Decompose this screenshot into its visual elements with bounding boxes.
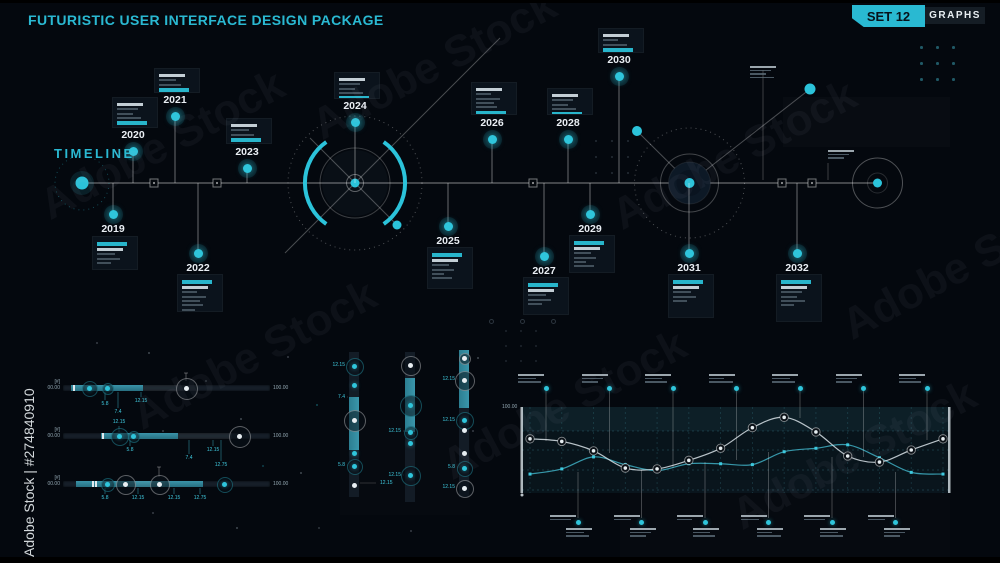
chart-callout-microtext — [566, 526, 592, 539]
year-label: 2031 — [659, 262, 719, 274]
card-text-line — [231, 129, 249, 131]
year-info-card — [776, 274, 822, 322]
card-text-line — [630, 528, 656, 530]
decor-dot-grid — [611, 140, 613, 142]
card-text-line — [476, 93, 491, 95]
year-info-card — [668, 274, 714, 318]
v-slider-tick-value: 7.4 — [315, 394, 345, 400]
slider-handle[interactable] — [237, 434, 242, 439]
card-text-line — [97, 253, 115, 255]
slider-handle[interactable] — [408, 403, 413, 408]
card-text-line — [476, 88, 502, 91]
year-label: 2023 — [217, 146, 277, 158]
v-slider-tick-value: 5.8 — [425, 464, 455, 470]
set-badge: SET 12 — [852, 5, 925, 27]
card-text-line — [693, 535, 715, 537]
slider-handle[interactable] — [462, 428, 467, 433]
hud-annotation-microtext — [750, 64, 776, 80]
card-text-line — [574, 247, 600, 250]
card-highlight-line — [432, 253, 462, 257]
card-highlight-line — [231, 138, 261, 142]
v-slider-tick-value: 12.15 — [371, 472, 401, 478]
decor-dot-grid — [920, 46, 923, 49]
slider-handle[interactable] — [462, 486, 467, 491]
card-text-line — [550, 515, 576, 517]
decor-dot-grid — [920, 78, 923, 81]
slider-handle[interactable] — [123, 482, 128, 487]
h-slider-tick-value: 12.15 — [168, 495, 181, 501]
decor-dot-grid — [505, 345, 507, 347]
card-highlight-line — [552, 112, 582, 115]
year-info-card — [92, 236, 138, 270]
chart-callout-dot[interactable] — [861, 386, 866, 391]
card-text-line — [614, 519, 631, 521]
year-info-card — [569, 235, 615, 273]
year-node-dot[interactable] — [685, 249, 694, 258]
card-text-line — [231, 134, 254, 136]
card-text-line — [868, 519, 885, 521]
chart-callout-microtext — [550, 513, 572, 522]
card-text-line — [566, 528, 592, 530]
card-text-line — [432, 269, 454, 271]
card-text-line — [574, 265, 594, 267]
chart-callout-dot[interactable] — [893, 520, 898, 525]
card-text-line — [836, 374, 862, 376]
h-slider-max-label: 100.00 — [273, 385, 288, 391]
slider-handle[interactable] — [408, 430, 413, 435]
card-text-line — [836, 378, 857, 380]
slider-handle[interactable] — [462, 378, 467, 383]
decor-dot-grid — [505, 360, 507, 362]
card-text-line — [339, 88, 355, 90]
card-text-line — [781, 291, 802, 293]
card-text-line — [741, 519, 759, 521]
h-slider-min-label: 00.00 — [44, 385, 60, 391]
card-text-line — [673, 296, 696, 298]
decor-dot-grid — [611, 156, 613, 158]
year-node-dot[interactable] — [488, 135, 497, 144]
card-text-line — [182, 291, 197, 293]
card-text-line — [476, 98, 500, 100]
card-text-line — [614, 515, 640, 517]
card-highlight-line — [476, 111, 506, 115]
card-highlight-line — [673, 280, 703, 284]
card-text-line — [528, 299, 551, 301]
card-text-line — [820, 528, 846, 530]
chart-callout-dot[interactable] — [830, 520, 835, 525]
card-text-line — [693, 528, 719, 530]
card-text-line — [630, 532, 651, 534]
page-title: FUTURISTIC USER INTERFACE DESIGN PACKAGE — [28, 12, 384, 28]
slider-handle[interactable] — [131, 434, 136, 439]
card-highlight-line — [182, 280, 212, 284]
card-text-line — [182, 286, 208, 289]
card-text-line — [159, 74, 185, 77]
category-badge-label: GRAPHS — [929, 10, 981, 21]
card-text-line — [757, 532, 772, 534]
card-text-line — [884, 535, 900, 537]
card-text-line — [804, 519, 825, 521]
year-label: 2028 — [538, 117, 598, 129]
decor-dot-grid — [952, 78, 955, 81]
year-node-dot[interactable] — [194, 249, 203, 258]
card-text-line — [750, 77, 774, 79]
card-highlight-line — [528, 283, 558, 287]
year-label: 2024 — [325, 100, 385, 112]
slider-handle[interactable] — [352, 451, 357, 456]
chart-left-axis — [521, 407, 524, 493]
decor-dot-grid — [520, 360, 522, 362]
card-text-line — [432, 264, 449, 266]
v-slider-tick-value: 12.15 — [425, 484, 455, 490]
design-package-canvas: FUTURISTIC USER INTERFACE DESIGN PACKAGE… — [0, 0, 1000, 563]
card-text-line — [182, 296, 206, 298]
decor-dot-grid — [505, 330, 507, 332]
chart-callout-microtext — [757, 526, 783, 539]
year-info-card — [547, 88, 593, 115]
card-text-line — [757, 535, 781, 537]
decor-dot-grid — [936, 46, 939, 49]
slider-handle[interactable] — [87, 386, 92, 391]
h-slider-min-label: 00.00 — [44, 433, 60, 439]
card-text-line — [117, 117, 141, 119]
slider-handle[interactable] — [408, 441, 413, 446]
chart-callout-microtext — [868, 513, 890, 522]
card-text-line — [432, 259, 458, 262]
chart-callout-microtext — [614, 513, 636, 522]
v-slider-tick-value: 5.8 — [315, 462, 345, 468]
h-slider-tick-value: 5.8 — [127, 447, 134, 453]
v-slider-tick-value: 12.15 — [425, 376, 455, 382]
slider-handle[interactable] — [462, 451, 467, 456]
chart-callout-dot[interactable] — [544, 386, 549, 391]
h-slider-min-label: 00.00 — [44, 481, 60, 487]
chart-callout-dot[interactable] — [671, 386, 676, 391]
card-text-line — [709, 381, 733, 383]
card-text-line — [781, 286, 807, 289]
set-badge-label: SET 12 — [867, 9, 910, 24]
h-slider-tick-value: 12.15 — [207, 447, 220, 453]
decor-hollow-dot — [551, 319, 556, 324]
card-text-line — [518, 378, 536, 380]
card-text-line — [231, 124, 257, 127]
card-text-line — [673, 286, 699, 289]
year-info-card — [177, 274, 223, 312]
card-text-line — [630, 535, 646, 537]
card-text-line — [820, 532, 838, 534]
v-slider-tick-value: 12.15 — [315, 362, 345, 368]
hud-annotation-microtext — [828, 148, 852, 161]
card-text-line — [868, 515, 894, 517]
decor-hollow-dot — [520, 319, 525, 324]
card-text-line — [528, 294, 546, 296]
card-text-line — [603, 44, 627, 46]
chart-callout-microtext — [630, 526, 656, 539]
card-text-line — [709, 378, 724, 380]
card-text-line — [97, 262, 111, 264]
card-text-line — [693, 532, 710, 534]
card-text-line — [899, 381, 921, 383]
slider-handle[interactable] — [352, 418, 357, 423]
card-text-line — [645, 374, 671, 376]
card-text-line — [552, 94, 578, 97]
chart-callout-dot[interactable] — [703, 520, 708, 525]
card-text-line — [603, 34, 629, 37]
v-slider-tick-value: 12.15 — [425, 417, 455, 423]
year-info-card — [523, 277, 569, 315]
card-text-line — [574, 261, 586, 263]
h-slider-tick-value: 12.15 — [113, 419, 126, 425]
chart-callout-dot[interactable] — [766, 520, 771, 525]
card-text-line — [757, 528, 783, 530]
year-node-dot[interactable] — [793, 249, 802, 258]
slider-handle[interactable] — [352, 483, 357, 488]
v-slider-tick-value: 12.15 — [380, 480, 393, 486]
card-text-line — [476, 106, 497, 108]
year-label: 2021 — [145, 94, 205, 106]
decor-dot-grid — [920, 62, 923, 65]
decor-dot-grid — [520, 330, 522, 332]
card-text-line — [582, 381, 598, 383]
decor-dot-grid — [520, 345, 522, 347]
slider-handle[interactable] — [157, 482, 162, 487]
chart-callout-microtext — [836, 372, 860, 385]
card-text-line — [552, 104, 568, 106]
h-slider-tick-value: 12.75 — [215, 462, 228, 468]
card-text-line — [432, 273, 444, 275]
h-slider-tick-value: 12.75 — [194, 495, 207, 501]
frame-edge-bottom — [0, 557, 1000, 563]
slider-handle[interactable] — [408, 363, 413, 368]
card-text-line — [574, 252, 591, 254]
card-text-line — [117, 113, 133, 115]
h-slider-marker-tick — [95, 481, 97, 487]
card-text-line — [432, 277, 452, 279]
card-text-line — [182, 304, 203, 306]
card-text-line — [673, 291, 691, 293]
card-text-line — [339, 78, 365, 81]
decor-dot-grid — [535, 345, 537, 347]
decor-dot-grid — [611, 172, 613, 174]
slider-handle[interactable] — [462, 356, 467, 361]
year-node-dot[interactable] — [564, 135, 573, 144]
card-text-line — [97, 258, 120, 260]
slider-handle[interactable] — [408, 473, 413, 478]
card-text-line — [884, 532, 905, 534]
slider-handle[interactable] — [352, 364, 357, 369]
decor-dot-grid — [936, 78, 939, 81]
year-label: 2025 — [418, 235, 478, 247]
year-node-dot[interactable] — [351, 118, 360, 127]
card-text-line — [899, 374, 925, 376]
card-text-line — [182, 300, 200, 302]
card-text-line — [772, 381, 795, 383]
card-highlight-line — [574, 241, 604, 245]
chart-right-axis — [948, 407, 951, 493]
card-text-line — [645, 378, 662, 380]
chart-callout-microtext — [709, 372, 733, 385]
year-info-card — [334, 72, 380, 99]
card-text-line — [750, 70, 771, 72]
card-text-line — [804, 515, 830, 517]
card-text-line — [182, 309, 195, 311]
h-slider-max-label: 100.00 — [273, 481, 288, 487]
card-text-line — [117, 103, 143, 106]
card-highlight-line — [339, 96, 369, 99]
year-label: 2032 — [767, 262, 827, 274]
card-text-line — [781, 304, 794, 306]
year-node-dot[interactable] — [109, 210, 118, 219]
year-label: 2019 — [83, 223, 143, 235]
card-text-line — [566, 535, 589, 537]
card-text-line — [828, 150, 854, 152]
card-text-line — [603, 39, 618, 41]
slider-handle[interactable] — [462, 466, 467, 471]
chart-callout-dot[interactable] — [925, 386, 930, 391]
decor-dot-grid — [535, 330, 537, 332]
decor-hollow-dot — [489, 319, 494, 324]
card-text-line — [97, 248, 123, 251]
card-text-line — [159, 79, 176, 81]
decor-dot-grid — [936, 62, 939, 65]
chart-callout-dot[interactable] — [576, 520, 581, 525]
decor-dot-grid — [595, 156, 597, 158]
decor-dot-grid — [627, 172, 629, 174]
card-text-line — [552, 99, 573, 101]
card-text-line — [750, 66, 776, 68]
chart-callout-microtext — [820, 526, 846, 539]
card-text-line — [550, 519, 571, 521]
year-info-card — [154, 68, 200, 93]
card-text-line — [781, 300, 805, 302]
card-text-line — [836, 381, 852, 383]
card-text-line — [781, 296, 797, 298]
card-text-line — [899, 378, 916, 380]
year-label: 2026 — [462, 117, 522, 129]
slider-handle[interactable] — [462, 418, 467, 423]
card-text-line — [677, 515, 703, 517]
h-slider-max-label: 100.00 — [273, 433, 288, 439]
card-text-line — [772, 378, 790, 380]
chart-callout-microtext — [899, 372, 923, 385]
chart-callout-microtext — [693, 526, 719, 539]
slider-handle[interactable] — [184, 386, 189, 391]
chart-callout-dot[interactable] — [734, 386, 739, 391]
category-badge[interactable]: GRAPHS — [925, 7, 985, 24]
card-text-line — [582, 378, 603, 380]
year-label: 2027 — [514, 265, 574, 277]
card-text-line — [528, 289, 554, 292]
slider-handle[interactable] — [352, 464, 357, 469]
year-node-dot[interactable] — [586, 210, 595, 219]
year-node-dot[interactable] — [540, 252, 549, 261]
year-node-dot[interactable] — [171, 112, 180, 121]
decor-dot-grid — [595, 172, 597, 174]
decor-dot-grid — [952, 46, 955, 49]
card-highlight-line — [603, 48, 633, 52]
card-text-line — [828, 157, 844, 159]
card-text-line — [528, 303, 542, 305]
chart-callout-dot[interactable] — [607, 386, 612, 391]
year-label: 2029 — [560, 223, 620, 235]
h-slider-tick-value: 7.4 — [115, 409, 122, 415]
card-text-line — [518, 381, 541, 383]
slider-handle[interactable] — [105, 386, 110, 391]
decor-dot-grid — [595, 140, 597, 142]
card-text-line — [645, 381, 667, 383]
card-text-line — [884, 528, 910, 530]
card-text-line — [566, 532, 584, 534]
card-highlight-line — [781, 280, 811, 284]
h-slider-marker-tick — [73, 385, 75, 391]
card-text-line — [117, 108, 138, 110]
slider-handle[interactable] — [222, 482, 227, 487]
chart-callout-microtext — [645, 372, 669, 385]
h-slider-marker-tick — [102, 433, 104, 439]
card-text-line — [741, 515, 767, 517]
chart-callout-microtext — [884, 526, 910, 539]
chart-callout-microtext — [772, 372, 796, 385]
card-highlight-line — [117, 121, 147, 125]
chart-callout-dot[interactable] — [639, 520, 644, 525]
h-slider-tick-value: 12.15 — [132, 495, 145, 501]
card-text-line — [518, 374, 544, 376]
year-node-dot[interactable] — [444, 222, 453, 231]
year-info-card — [598, 28, 644, 53]
h-slider-tick-value: 5.8 — [102, 495, 109, 501]
card-text-line — [552, 108, 576, 110]
year-node-dot[interactable] — [243, 164, 252, 173]
year-node-dot[interactable] — [615, 72, 624, 81]
slider-handle[interactable] — [117, 434, 122, 439]
h-slider-tick-value: 5.8 — [102, 401, 109, 407]
year-info-card — [226, 118, 272, 144]
decor-dot-grid — [627, 156, 629, 158]
year-label: 2030 — [589, 54, 649, 66]
chart-ymax-label: 100.00 — [502, 404, 517, 410]
h-slider-marker-tick — [92, 481, 94, 487]
timeline-label: TIMELINE — [54, 146, 135, 161]
chart-background — [522, 407, 949, 493]
card-text-line — [476, 102, 494, 104]
card-text-line — [750, 73, 766, 75]
year-node-dot[interactable] — [129, 147, 138, 156]
decor-dot-grid — [952, 62, 955, 65]
card-text-line — [582, 374, 608, 376]
h-slider-buffer — [178, 433, 232, 439]
card-text-line — [828, 154, 849, 156]
chart-callout-microtext — [804, 513, 826, 522]
card-text-line — [677, 519, 692, 521]
decor-dot-grid — [535, 360, 537, 362]
v-slider-tick-value: 12.15 — [371, 428, 401, 434]
card-text-line — [339, 83, 360, 85]
card-text-line — [772, 374, 798, 376]
slider-handle[interactable] — [352, 383, 357, 388]
card-highlight-line — [97, 242, 127, 246]
card-text-line — [820, 535, 843, 537]
frame-edge-top — [0, 0, 1000, 3]
decor-dot-grid — [627, 140, 629, 142]
year-info-card — [471, 82, 517, 115]
card-text-line — [709, 374, 735, 376]
chart-callout-dot[interactable] — [798, 386, 803, 391]
year-info-card — [427, 247, 473, 289]
chart-callout-microtext — [518, 372, 542, 385]
h-slider-tick-value: 12.15 — [135, 398, 148, 404]
slider-handle[interactable] — [105, 482, 110, 487]
h-slider-tick-value: 7.4 — [186, 455, 193, 461]
